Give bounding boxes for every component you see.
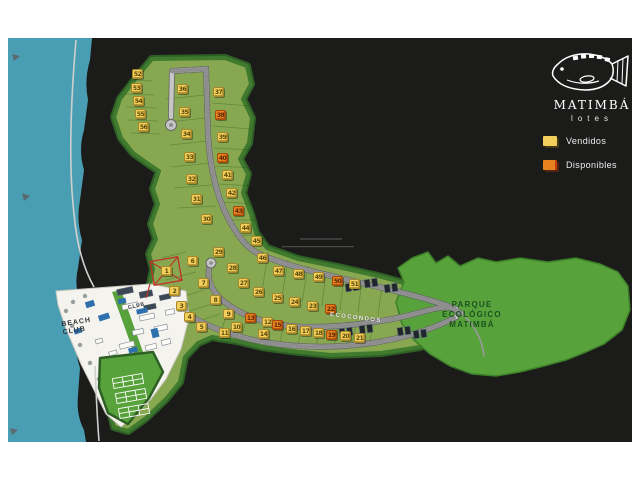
lot-tag-7: 7 <box>198 278 209 288</box>
lot-tag-14: 14 <box>258 329 269 339</box>
vendidos-color-swatch <box>543 136 557 146</box>
lot-tag-48: 48 <box>293 269 304 279</box>
disponibles-label: Disponibles <box>566 160 617 170</box>
lot-tag-36: 36 <box>177 84 188 94</box>
lot-tag-10: 10 <box>231 322 242 332</box>
lot-tag-20: 20 <box>340 331 351 341</box>
lot-tag-15: 15 <box>272 320 283 330</box>
lot-tag-29: 29 <box>213 247 224 257</box>
lot-tag-26: 26 <box>253 287 264 297</box>
lot-tag-44: 44 <box>240 223 251 233</box>
lot-tag-8: 8 <box>210 295 221 305</box>
lot-tag-18: 18 <box>313 328 324 338</box>
lot-tag-52: 52 <box>132 69 143 79</box>
lot-tag-30: 30 <box>201 214 212 224</box>
lot-tag-16: 16 <box>286 324 297 334</box>
brand-subtitle: lotes <box>540 114 640 123</box>
lot-tag-55: 55 <box>135 109 146 119</box>
lot-tag-41: 41 <box>222 170 233 180</box>
lot-tag-2: 2 <box>169 286 180 296</box>
park-label: PARQUE ECOLÓGICO MATIMBÁ <box>432 300 512 330</box>
lot-tag-19: 19 <box>326 330 337 340</box>
lot-tag-32: 32 <box>186 174 197 184</box>
legend-row-vendidos: Vendidos <box>543 136 617 146</box>
lot-tag-13: 13 <box>245 313 256 323</box>
brand-name: MATIMBÁ <box>540 98 640 112</box>
lot-tag-46: 46 <box>257 253 268 263</box>
lot-tag-35: 35 <box>179 107 190 117</box>
lot-tag-27: 27 <box>238 278 249 288</box>
lot-tag-11: 11 <box>219 328 230 338</box>
lot-tag-24: 24 <box>289 297 300 307</box>
lot-tag-53: 53 <box>131 83 142 93</box>
lot-tag-39: 39 <box>217 132 228 142</box>
lot-tag-34: 34 <box>181 129 192 139</box>
lot-tag-54: 54 <box>133 96 144 106</box>
lot-tag-21: 21 <box>354 333 365 343</box>
lot-tag-17: 17 <box>300 326 311 336</box>
site-plan-stage: 1234567891011121314151617181920212223242… <box>0 0 640 480</box>
lot-tag-5: 5 <box>196 322 207 332</box>
lot-tag-50: 50 <box>332 276 343 286</box>
lot-tag-38: 38 <box>215 110 226 120</box>
disponibles-color-swatch <box>543 160 557 170</box>
park-label-line2: ECOLÓGICO <box>432 310 512 320</box>
vendidos-label: Vendidos <box>566 136 606 146</box>
lot-tag-47: 47 <box>273 266 284 276</box>
lot-tag-3: 3 <box>176 301 187 311</box>
fish-logo-icon <box>549 48 635 96</box>
lot-tag-45: 45 <box>251 236 262 246</box>
lot-tag-43: 43 <box>233 206 244 216</box>
lot-tag-51: 51 <box>349 279 360 289</box>
lot-tag-31: 31 <box>191 194 202 204</box>
lot-tag-9: 9 <box>223 309 234 319</box>
park-label-line1: PARQUE <box>432 300 512 310</box>
lot-tag-4: 4 <box>184 312 195 322</box>
lot-tag-6: 6 <box>187 256 198 266</box>
lot-tag-40: 40 <box>217 153 228 163</box>
lot-tag-56: 56 <box>138 122 149 132</box>
lot-tag-28: 28 <box>227 263 238 273</box>
park-label-line3: MATIMBÁ <box>432 320 512 330</box>
lot-tag-1: 1 <box>161 266 172 276</box>
legend-row-disponibles: Disponibles <box>543 160 617 170</box>
lot-tag-33: 33 <box>184 152 195 162</box>
lot-tag-37: 37 <box>213 87 224 97</box>
lot-tag-42: 42 <box>226 188 237 198</box>
lot-tag-23: 23 <box>307 301 318 311</box>
lot-tag-49: 49 <box>313 272 324 282</box>
legend: Vendidos Disponibles <box>543 136 617 184</box>
lot-tag-25: 25 <box>272 293 283 303</box>
brand-logo: MATIMBÁ lotes <box>540 48 640 123</box>
